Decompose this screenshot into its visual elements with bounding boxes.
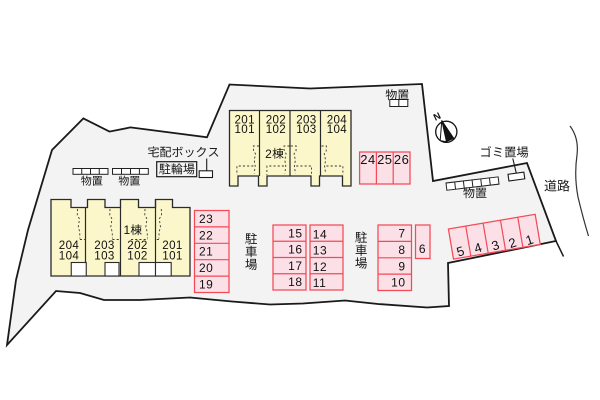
svg-text:14: 14 [313, 227, 327, 241]
svg-text:13: 13 [313, 244, 327, 258]
svg-text:26: 26 [394, 152, 409, 167]
svg-text:101: 101 [234, 123, 254, 136]
svg-text:20: 20 [199, 261, 213, 275]
svg-text:10: 10 [391, 276, 405, 290]
svg-text:24: 24 [360, 152, 375, 167]
svg-text:101: 101 [162, 250, 182, 263]
svg-text:17: 17 [288, 259, 302, 273]
svg-text:19: 19 [199, 278, 213, 292]
svg-text:23: 23 [199, 212, 213, 226]
svg-text:9: 9 [398, 259, 405, 273]
svg-text:25: 25 [377, 152, 392, 167]
svg-text:104: 104 [327, 123, 348, 136]
svg-text:15: 15 [288, 226, 302, 240]
svg-text:22: 22 [199, 228, 213, 242]
svg-text:1: 1 [123, 223, 130, 237]
svg-text:103: 103 [94, 250, 114, 263]
svg-text:104: 104 [59, 250, 80, 263]
svg-text:11: 11 [313, 276, 326, 290]
svg-text:102: 102 [266, 123, 286, 136]
svg-text:2: 2 [265, 147, 272, 161]
svg-text:7: 7 [398, 227, 405, 241]
svg-text:18: 18 [288, 275, 302, 289]
svg-text:21: 21 [199, 245, 213, 259]
svg-text:12: 12 [313, 260, 327, 274]
svg-text:6: 6 [419, 242, 426, 256]
svg-text:103: 103 [296, 123, 316, 136]
svg-text:8: 8 [398, 243, 405, 257]
svg-text:102: 102 [127, 250, 147, 263]
svg-text:16: 16 [288, 243, 302, 257]
